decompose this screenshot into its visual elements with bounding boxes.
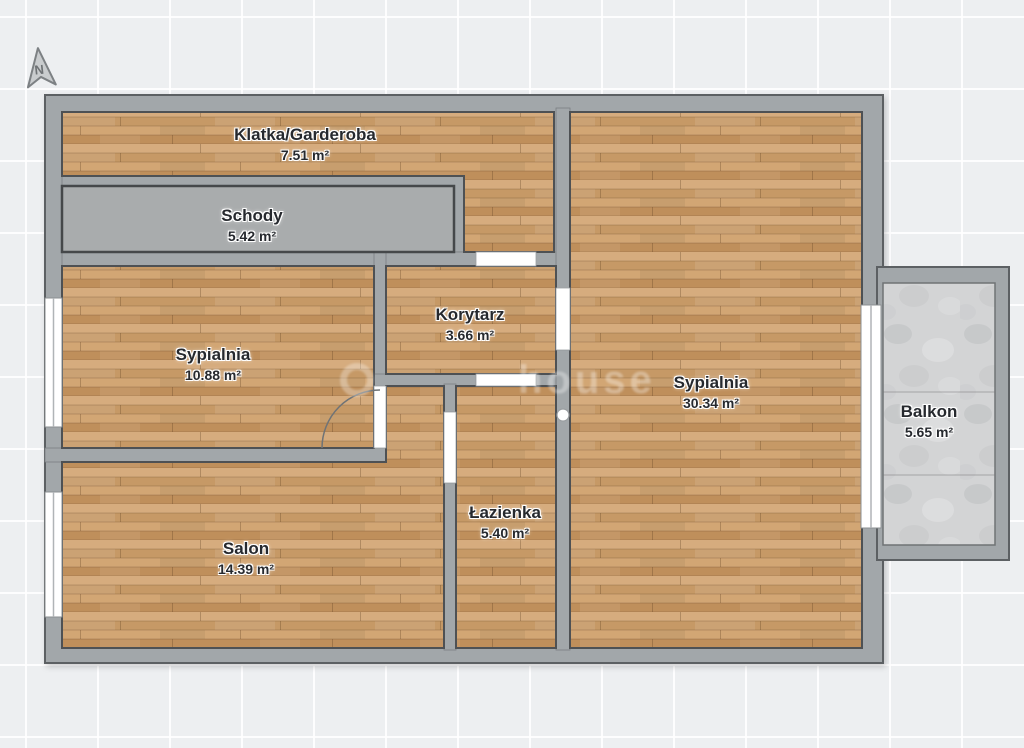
wall-salon-lazienka-top xyxy=(444,384,456,412)
wall-sypialnia-korytarz xyxy=(374,252,386,376)
door-opening-korytarz-lazienka xyxy=(476,374,536,386)
wall-korytarz-bottom-left xyxy=(374,374,476,386)
window-salon xyxy=(45,492,62,617)
room-korytarz-floor xyxy=(386,266,556,374)
door-opening-sypialnia-left xyxy=(374,386,386,448)
floor-plan-canvas: N house Klatka/Garderoba 7.51 m² Schody … xyxy=(0,0,1024,748)
door-opening-salon-lazienka xyxy=(444,412,456,483)
wall-salon-lazienka-bottom xyxy=(444,483,456,650)
room-balkon-floor xyxy=(883,283,995,545)
window-sypialnia-left xyxy=(45,298,62,427)
north-arrow-icon: N xyxy=(24,47,56,88)
door-opening-korytarz-sypialnia-right xyxy=(556,288,570,350)
svg-text:N: N xyxy=(34,62,45,78)
room-lazienka-floor xyxy=(456,386,556,648)
room-sypialnia-right-floor xyxy=(570,112,862,648)
door-pivot-dot xyxy=(557,409,569,421)
wall-main-divider-top xyxy=(556,108,570,290)
room-schody-floor xyxy=(62,186,454,252)
door-opening-klatka-korytarz xyxy=(476,252,536,266)
floor-plan-drawing: N xyxy=(0,0,1024,748)
window-balcony-door xyxy=(861,305,881,528)
wall-sypialnia-salon xyxy=(45,448,386,462)
room-sypialnia-left-floor xyxy=(62,266,374,448)
wall-main-divider-bottom xyxy=(556,350,570,650)
